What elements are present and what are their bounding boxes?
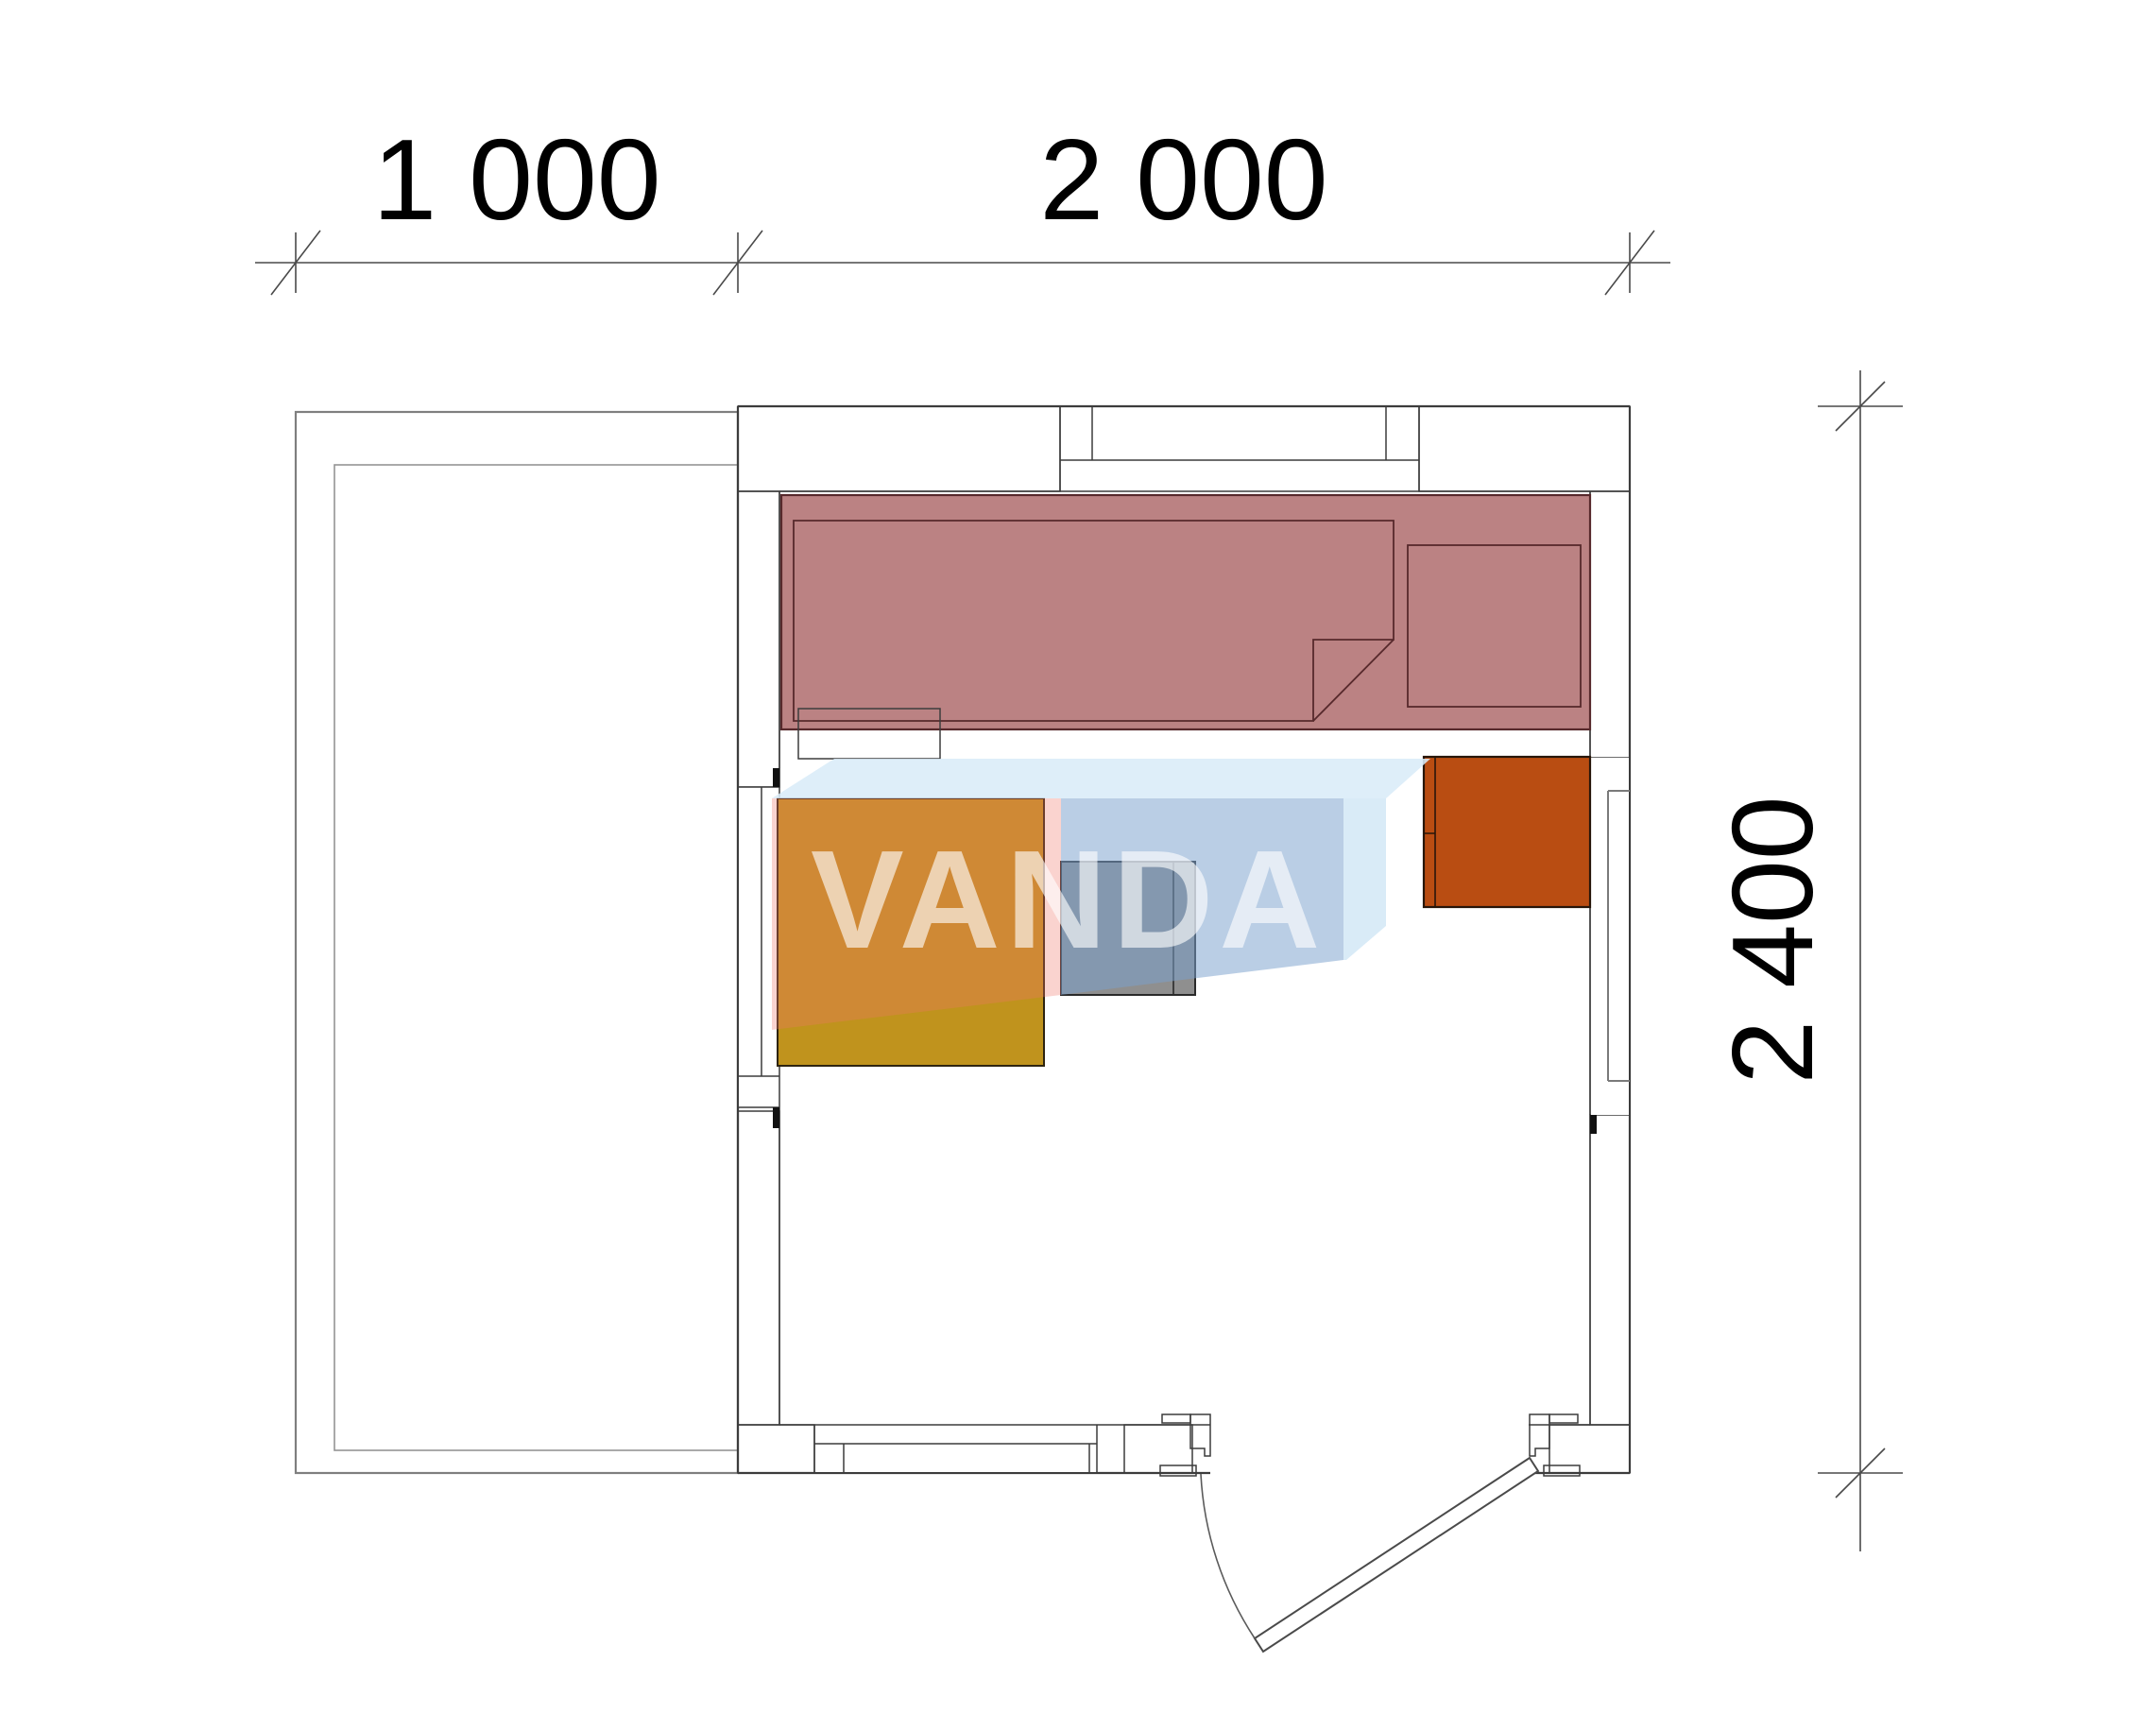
floor-plan-drawing: VANDA 1 000 2 000 2 400 — [0, 0, 2156, 1725]
door-leaf — [1255, 1458, 1538, 1652]
floor-plan-page: VANDA 1 000 2 000 2 400 — [0, 0, 2156, 1725]
wall-left-lower-segment — [738, 1111, 779, 1425]
terrace-outline — [296, 412, 738, 1473]
heater-body — [1424, 757, 1590, 907]
door-jamb-right-post — [1530, 1414, 1549, 1456]
window-right-opening — [1591, 758, 1629, 1115]
dimension-label-1000: 1 000 — [372, 115, 660, 244]
dimension-right: 2 400 — [1708, 370, 1903, 1551]
wall-top-right-segment — [1419, 406, 1630, 491]
vanda-watermark: VANDA — [772, 759, 1430, 1030]
window-bottom — [814, 1425, 1097, 1473]
watermark-box-top-face — [772, 759, 1430, 798]
wall-left-upper-segment — [738, 491, 779, 787]
wall-top-left-segment — [738, 406, 1060, 491]
window-top — [1060, 406, 1419, 491]
watermark-text: VANDA — [811, 822, 1326, 978]
wall-right-upper-segment — [1590, 491, 1630, 758]
terrace-outer-rect — [296, 412, 738, 1473]
door-jamb-left-bottom-bar — [1160, 1465, 1196, 1476]
door-swing-arc — [1201, 1474, 1255, 1638]
window-bottom-opening — [815, 1426, 1096, 1472]
entry-door — [1160, 1414, 1580, 1652]
window-left-jamb-mark-bottom — [773, 1107, 779, 1128]
watermark-box-right-face — [1343, 798, 1386, 960]
door-jamb-left-top-bar — [1162, 1414, 1190, 1423]
dimension-label-2400: 2 400 — [1708, 796, 1837, 1084]
wall-bottom-left-corner — [738, 1425, 814, 1473]
terrace-inner-rect — [334, 465, 738, 1450]
wall-right-lower-segment — [1590, 1115, 1630, 1425]
window-right-jamb-mark — [1590, 1115, 1597, 1134]
bed-base — [781, 495, 1590, 729]
dimension-label-2000: 2 000 — [1039, 115, 1327, 244]
window-right — [1590, 758, 1630, 1134]
dimension-top: 1 000 2 000 — [255, 115, 1670, 295]
door-jamb-left-post — [1190, 1414, 1210, 1456]
window-left-jamb-mark-top — [773, 768, 779, 787]
window-top-opening — [1061, 408, 1418, 490]
bed — [781, 495, 1590, 759]
door-jamb-right-top-bar — [1549, 1414, 1578, 1423]
heater — [1424, 757, 1590, 907]
